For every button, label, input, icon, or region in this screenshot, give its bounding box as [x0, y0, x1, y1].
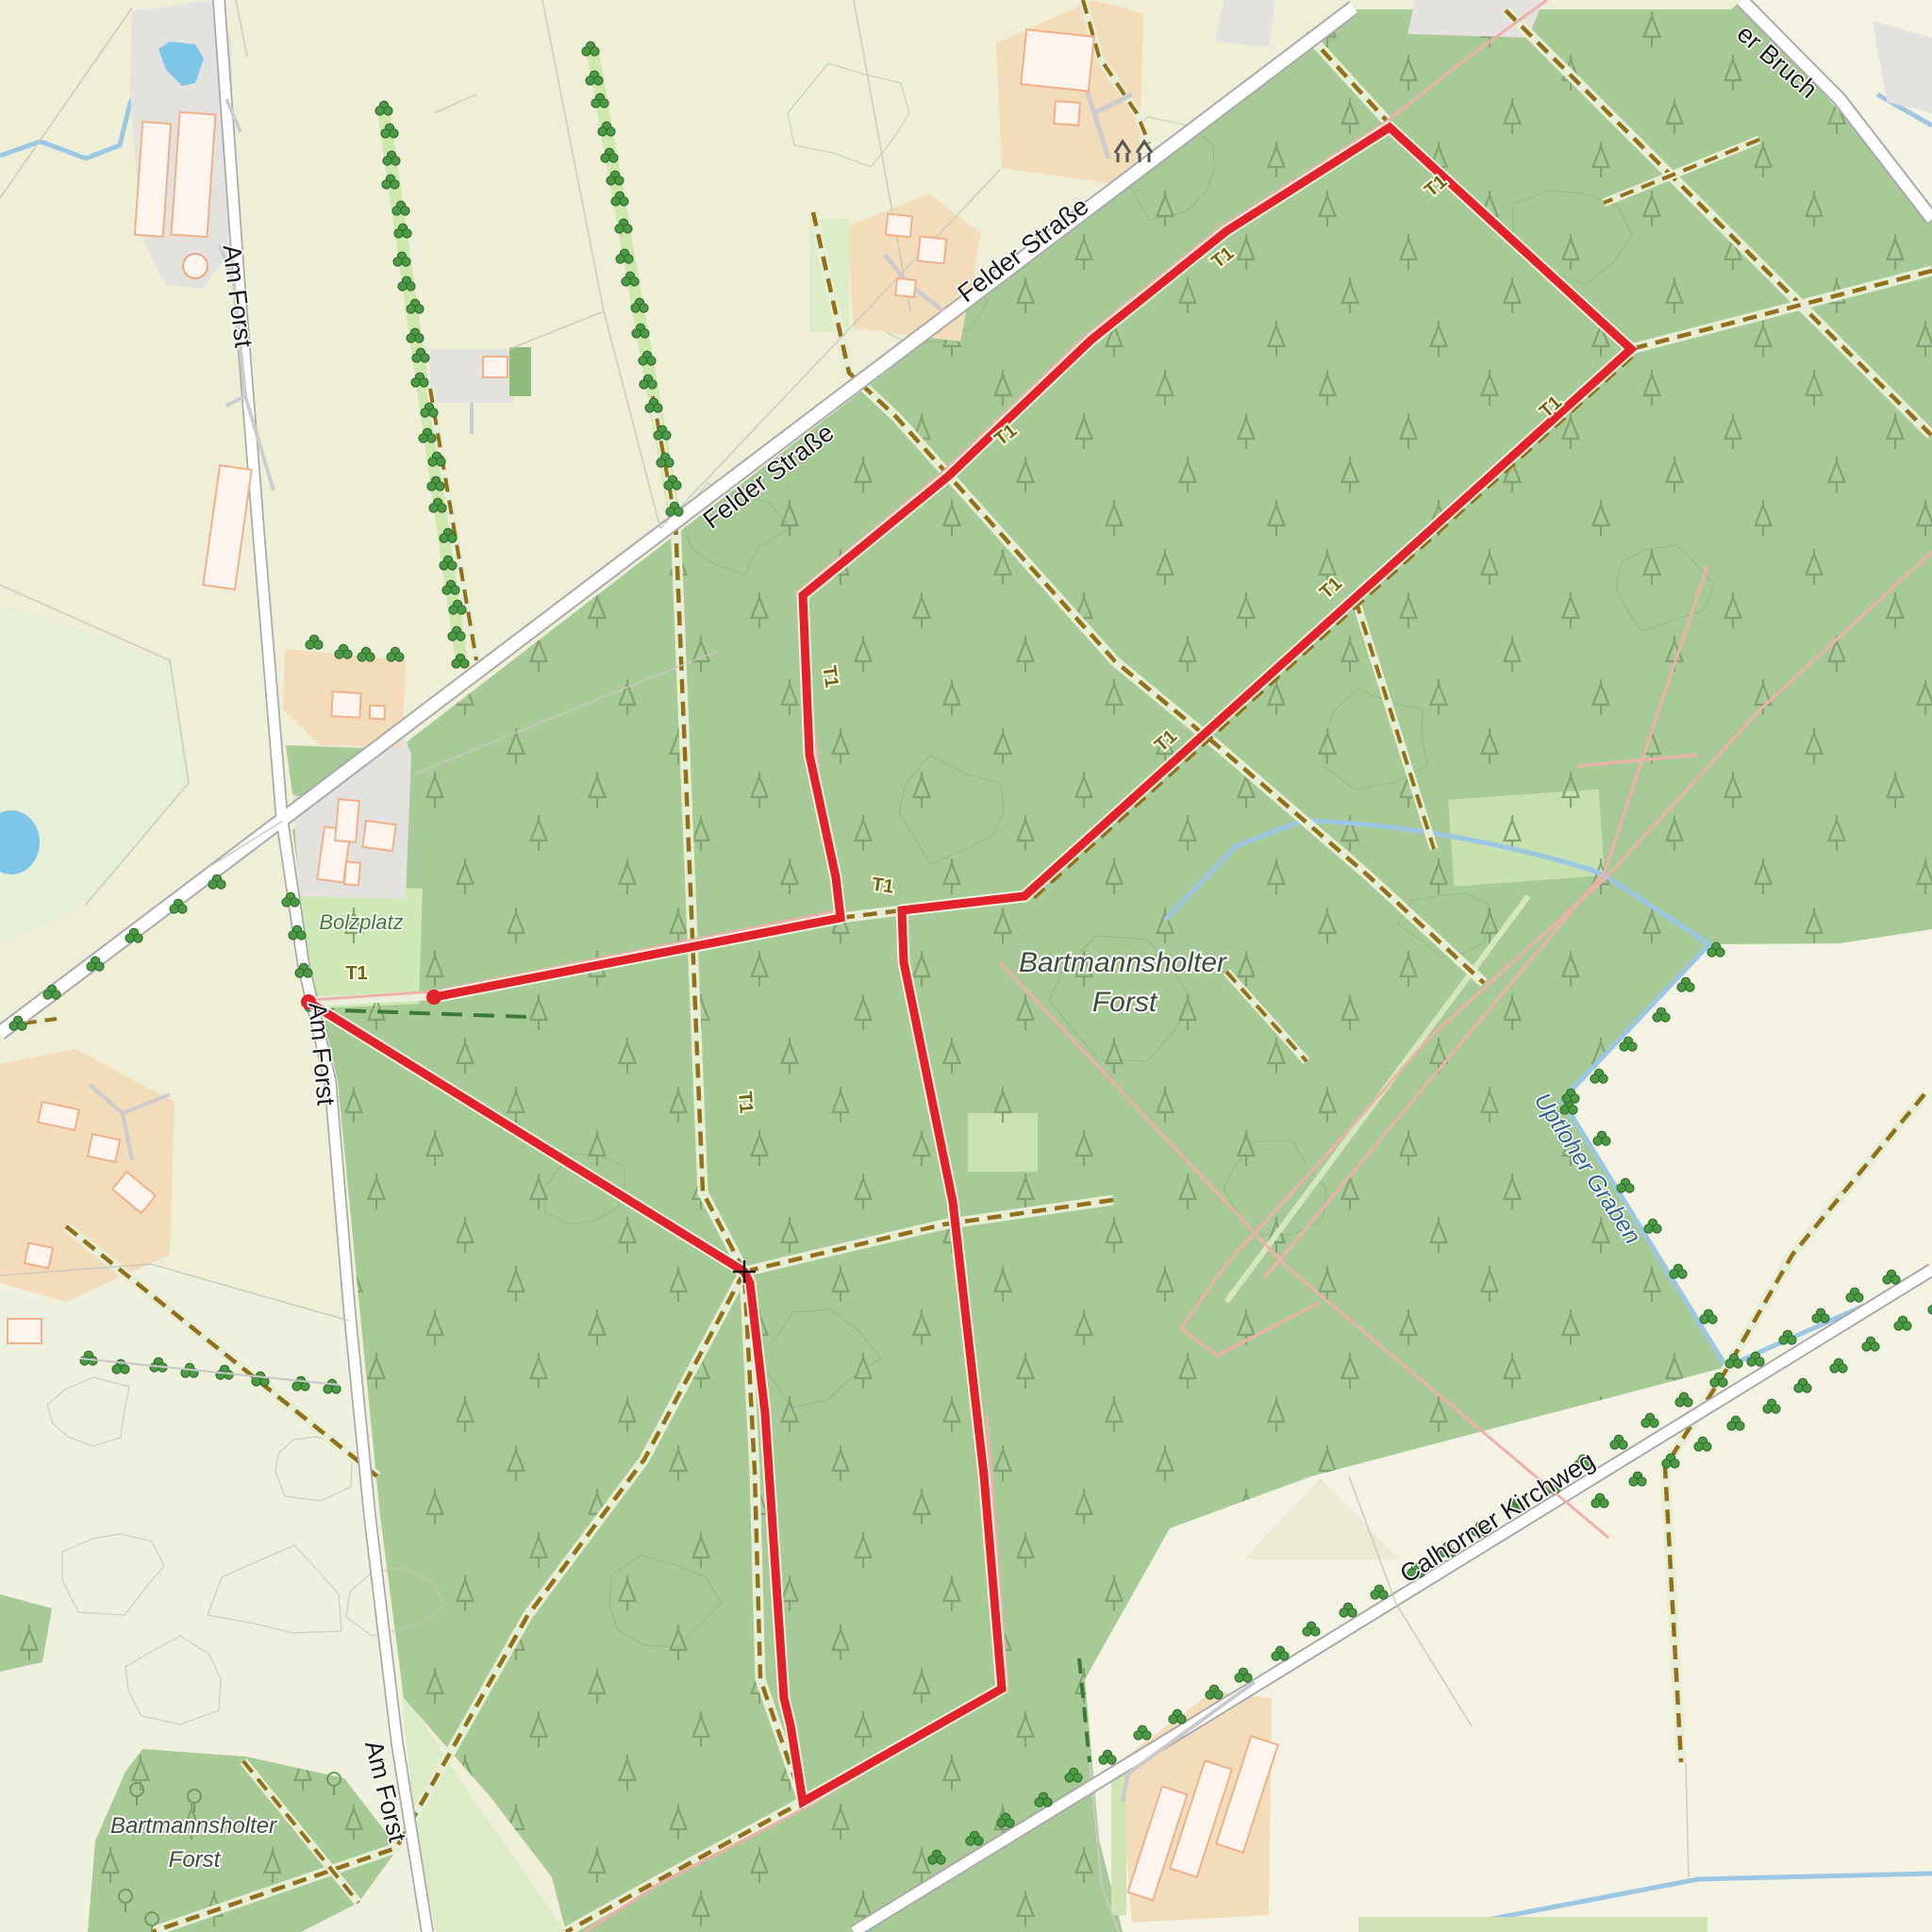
svg-text:Bolzplatz: Bolzplatz: [319, 910, 403, 934]
svg-text:Forst: Forst: [1092, 987, 1158, 1018]
svg-text:T1: T1: [818, 664, 841, 689]
svg-text:Forst: Forst: [169, 1847, 222, 1873]
svg-text:T1: T1: [345, 963, 367, 984]
svg-text:T1: T1: [871, 874, 895, 898]
svg-text:T1: T1: [734, 1091, 757, 1114]
svg-text:Bartmannsholter: Bartmannsholter: [1019, 947, 1227, 978]
svg-text:Bartmannsholter: Bartmannsholter: [110, 1813, 277, 1839]
